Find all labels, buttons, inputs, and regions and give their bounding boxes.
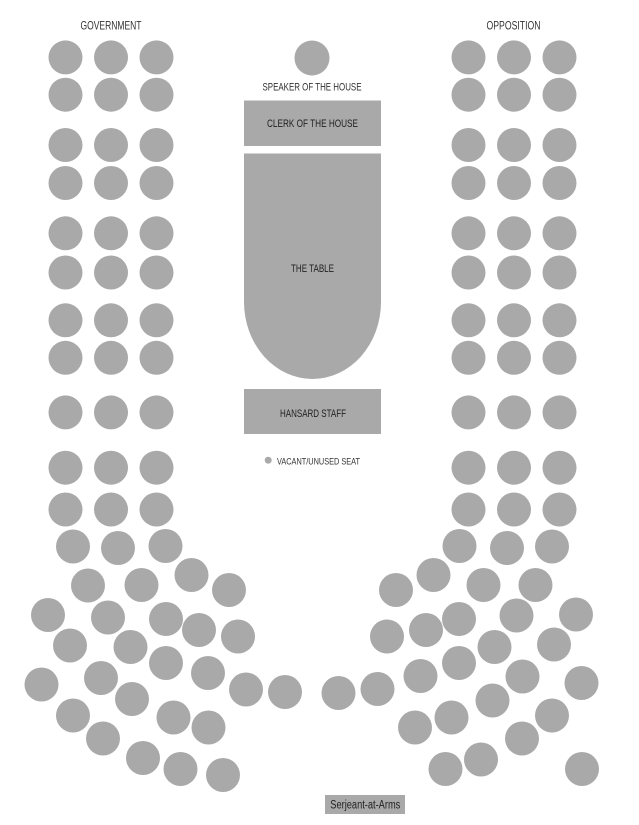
- svg-text:GOVERNMENT: GOVERNMENT: [81, 21, 142, 33]
- svg-text:HANSARD STAFF: HANSARD STAFF: [280, 408, 346, 420]
- svg-text:THE TABLE: THE TABLE: [291, 263, 334, 275]
- svg-text:OPPOSITION: OPPOSITION: [487, 21, 541, 33]
- svg-text:Serjeant-at-Arms: Serjeant-at-Arms: [330, 800, 400, 812]
- svg-text:SPEAKER OF THE HOUSE: SPEAKER OF THE HOUSE: [263, 82, 362, 94]
- svg-text:CLERK OF THE HOUSE: CLERK OF THE HOUSE: [267, 118, 358, 130]
- svg-text:VACANT/UNUSED SEAT: VACANT/UNUSED SEAT: [277, 457, 360, 468]
